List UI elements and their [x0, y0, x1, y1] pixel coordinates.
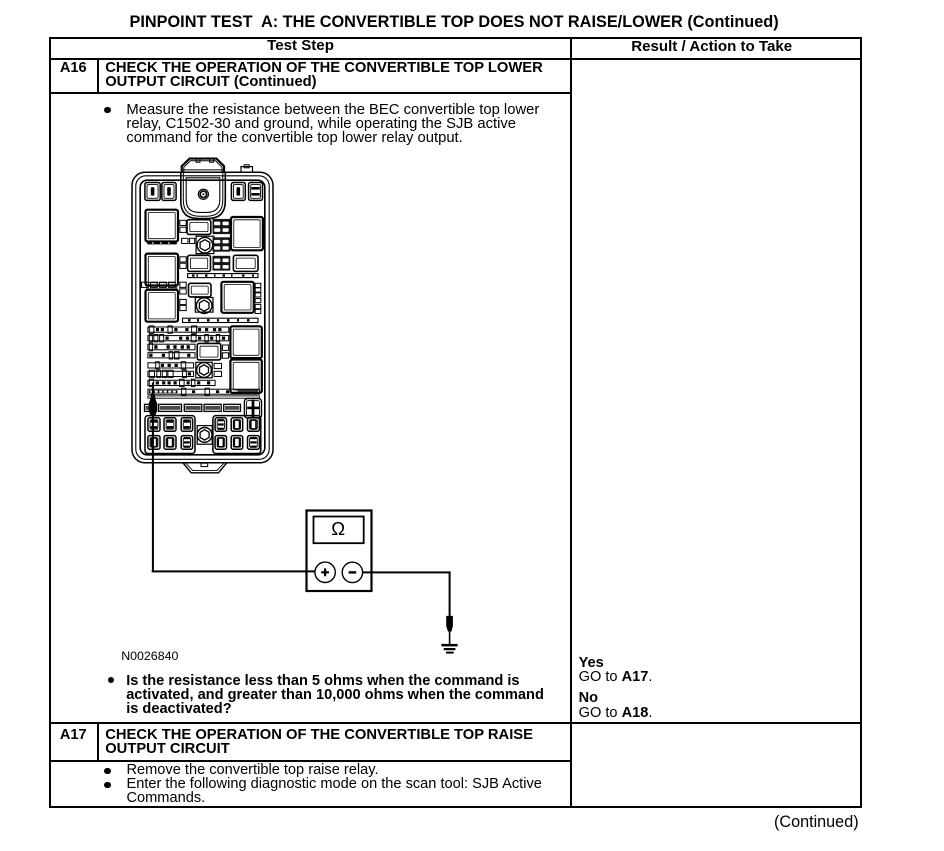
svg-text:Ω: Ω [331, 518, 345, 539]
